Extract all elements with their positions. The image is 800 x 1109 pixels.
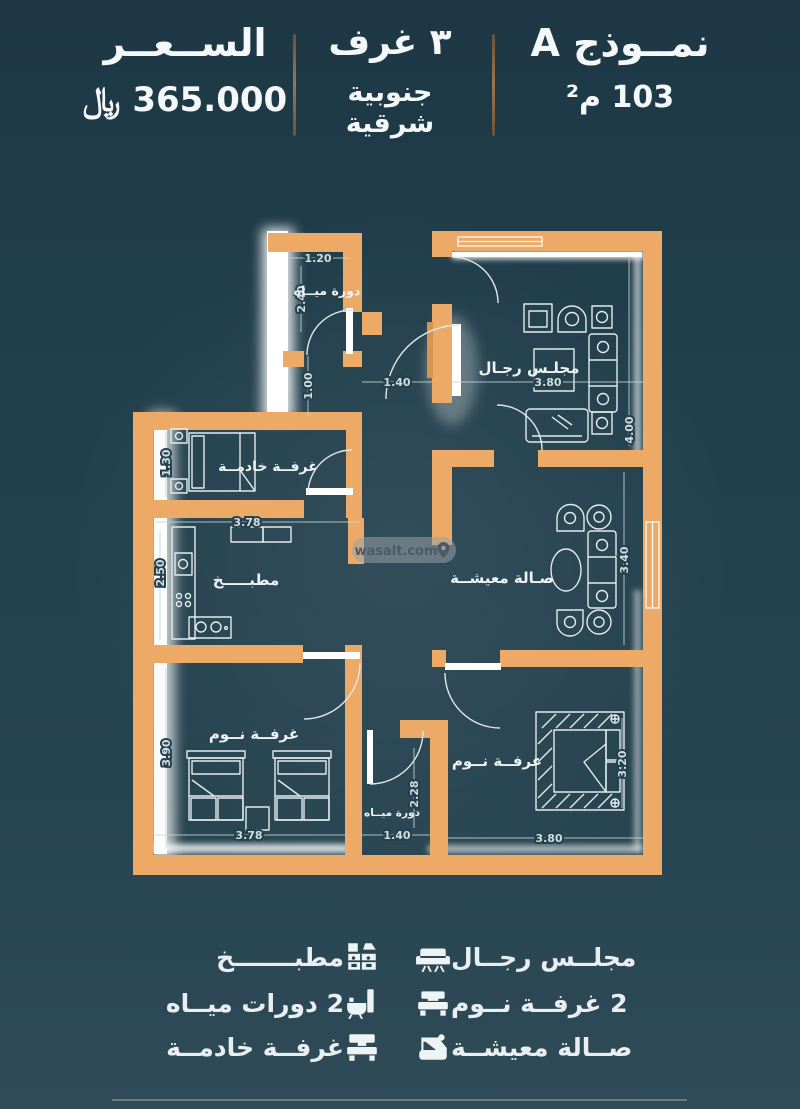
bedroom-left-furniture: [187, 751, 331, 830]
legend-item-bathrooms: 2 دورات ميــاه: [162, 982, 380, 1024]
floorplan-drawing: 1.20 2.40 1.00 1.40 3.80 4.00 1.30 3.78 …: [100, 215, 700, 895]
legend-item-kitchen: مطبـــــــخ: [162, 936, 380, 978]
legend-label-living: صــالة معيشــة: [451, 1033, 632, 1062]
watermark: wasalt.com: [352, 537, 456, 563]
svg-text:1.40: 1.40: [383, 829, 410, 842]
legend-label-kitchen: مطبـــــــخ: [162, 943, 344, 972]
room-label-bath-bottom: دورة ميــاه: [364, 807, 421, 819]
svg-text:2.50: 2.50: [154, 559, 167, 586]
svg-text:3.40: 3.40: [618, 546, 631, 573]
legend-item-maid-room: غرفــة خادمــة: [162, 1026, 380, 1068]
room-label-bath-top: دورة ميــاه: [294, 283, 361, 298]
header-model-column: نمــوذج A 103 م²: [500, 22, 740, 115]
floorplan-page: نمــوذج A 103 م² ٣ غرف جنوبية شرقية السـ…: [0, 0, 800, 1109]
orientation: جنوبية شرقية: [300, 77, 480, 139]
svg-text:2.28: 2.28: [408, 780, 421, 807]
svg-text:3.20: 3.20: [616, 750, 629, 777]
svg-text:4.00: 4.00: [623, 416, 636, 443]
svg-text:3.90: 3.90: [160, 739, 173, 766]
armchair-icon: [415, 1029, 451, 1065]
maid-bed-icon: [344, 1029, 380, 1065]
kitchen-icon: [344, 939, 380, 975]
svg-text:1.30: 1.30: [160, 449, 173, 476]
sofa-icon: [415, 939, 451, 975]
legend-label-maid-room: غرفــة خادمــة: [162, 1033, 344, 1062]
bedroom-right-furniture: [536, 712, 624, 810]
living-furniture: [551, 504, 616, 636]
legend-label-bathrooms: 2 دورات ميــاه: [162, 989, 344, 1018]
svg-text:3.78: 3.78: [235, 829, 262, 842]
footer-divider: [112, 1099, 687, 1101]
svg-text:3.80: 3.80: [535, 832, 562, 845]
model-area: 103 م²: [500, 80, 740, 115]
legend-item-majlis: مجلــس رجــال: [415, 936, 585, 978]
room-label-majlis: مجلـس رجـال: [479, 359, 580, 377]
room-label-bedroom-right: غرفــة نــوم: [452, 752, 542, 770]
legend-item-bedrooms: 2 غرفــة نــوم: [415, 982, 585, 1024]
header-divider-right: [492, 34, 495, 136]
room-label-living: صـالة معيشــة: [450, 569, 554, 587]
svg-text:1.40: 1.40: [383, 376, 410, 389]
svg-text:1.20: 1.20: [304, 252, 331, 265]
legend-label-majlis: مجلــس رجــال: [451, 943, 636, 972]
svg-text:3.78: 3.78: [233, 516, 260, 529]
svg-text:3.80: 3.80: [534, 376, 561, 389]
header-rooms-column: ٣ غرف جنوبية شرقية: [300, 22, 480, 139]
doors: [303, 257, 542, 784]
bath-icon: [344, 985, 380, 1021]
svg-text:1.00: 1.00: [302, 372, 315, 399]
room-label-kitchen: مطبـــــخ: [213, 571, 279, 589]
rooms-count: ٣ غرف: [300, 22, 480, 63]
price-value: 365.000 ﷼: [60, 80, 310, 120]
single-bed-icon: [415, 985, 451, 1021]
header-price-column: الســعــر 365.000 ﷼: [60, 22, 310, 120]
legend-label-bedrooms: 2 غرفــة نــوم: [451, 989, 628, 1018]
watermark-text: wasalt.com: [354, 544, 437, 559]
price-label: الســعــر: [60, 22, 310, 66]
legend-item-living: صــالة معيشــة: [415, 1026, 585, 1068]
room-label-bedroom-left: غرفــة نــوم: [209, 725, 299, 743]
room-label-maid: غرفــة خادمــة: [218, 459, 318, 475]
model-title: نمــوذج A: [500, 22, 740, 66]
